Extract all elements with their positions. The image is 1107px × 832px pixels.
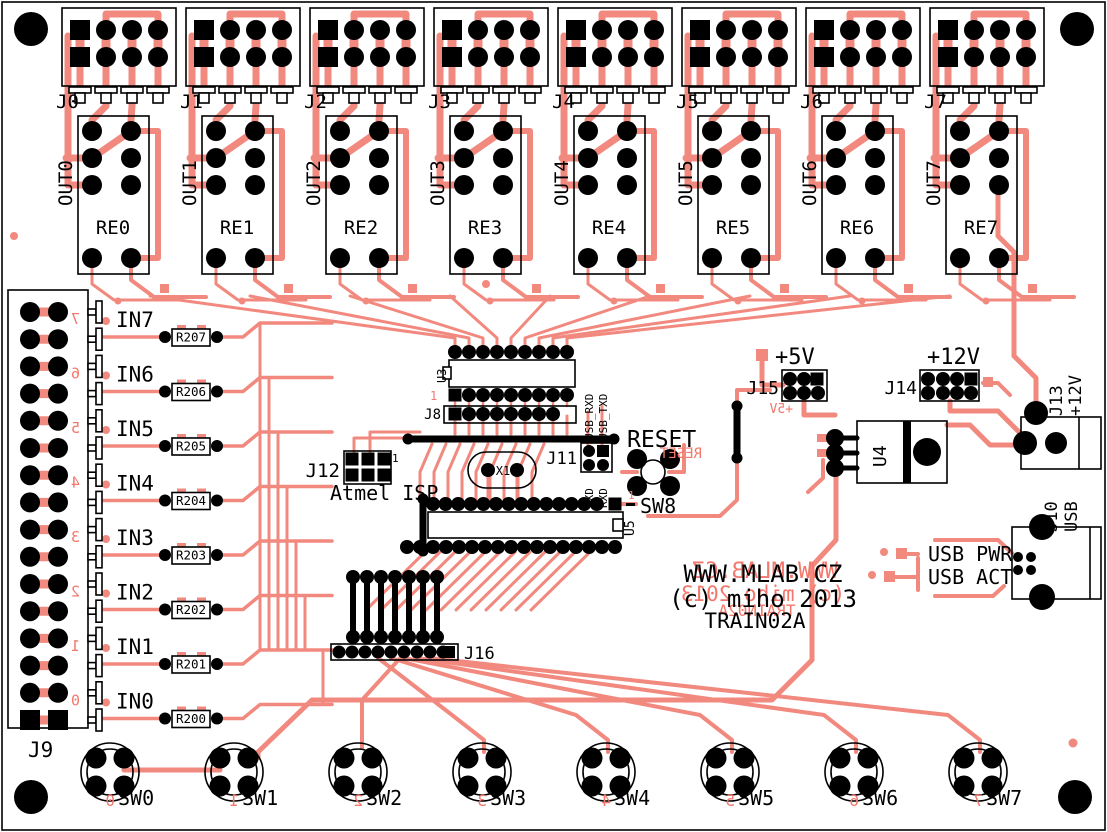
relay-pad [330, 248, 350, 268]
copper-trace [456, 552, 515, 610]
copper-pad [160, 284, 169, 293]
relay-pad [121, 175, 141, 195]
j9-terminal-pin [88, 608, 96, 614]
relay-pad [826, 121, 846, 141]
connector-pad [344, 20, 364, 40]
u3-pad [462, 388, 476, 402]
j10-signal-pad [1013, 565, 1023, 575]
resistor-designator: R207 [176, 330, 206, 345]
connector-pad [122, 47, 142, 67]
relay-pad [578, 175, 598, 195]
j9-terminal-pin [96, 546, 102, 568]
mounting-hole [14, 12, 48, 46]
u3-pin1-mark: 1 [430, 389, 437, 403]
terminal-pin [747, 93, 757, 103]
resistor-designator: R204 [176, 493, 206, 508]
connector-pad [938, 47, 958, 67]
relay-pad [330, 148, 350, 168]
terminal-pin [715, 87, 737, 93]
relay-designator: RE5 [716, 217, 750, 239]
connector-designator: J6 [800, 91, 823, 113]
connector-pad [220, 20, 240, 40]
relay-designator: RE4 [592, 217, 626, 239]
terminal-pin [1021, 93, 1031, 103]
connector-pad [592, 47, 612, 67]
terminal-pin [721, 93, 731, 103]
resistor-designator: R202 [176, 602, 206, 617]
relay-pad [702, 248, 722, 268]
resistor-pad [159, 713, 171, 725]
relay-pad [206, 121, 226, 141]
connector-pad [344, 47, 364, 67]
resistor-pad [211, 331, 223, 343]
u5-outline [428, 512, 623, 538]
sw8-designator: SW8 [640, 494, 676, 518]
resistor-pad [211, 658, 223, 670]
u4-tab-hole [913, 438, 941, 466]
u5-pad [464, 497, 478, 511]
j9-pin-number-mirrored: 3 [71, 528, 80, 546]
u3-pad [490, 345, 504, 359]
terminal-pin [277, 93, 287, 103]
isp-pad [362, 469, 375, 482]
u5-pad [556, 540, 570, 554]
terminal-pin [969, 93, 979, 103]
relay-pad [865, 148, 885, 168]
output-label: OUT4 [551, 160, 573, 206]
u3-pad [462, 345, 476, 359]
u5-pad [595, 540, 609, 554]
u5-pad [552, 497, 566, 511]
relay-pad [493, 248, 513, 268]
relay-pad [702, 121, 722, 141]
u4-designator: U4 [870, 445, 891, 467]
j9-terminal-pin [96, 627, 102, 649]
j9-pad [20, 547, 40, 567]
j9-pad [20, 601, 40, 621]
u5-pad [504, 540, 518, 554]
board-name-text: TRAIN02A [704, 609, 806, 633]
copper-trace [531, 552, 590, 610]
relay-pad [617, 121, 637, 141]
j9-terminal-pin [88, 418, 96, 424]
j11-designator: J11 [546, 449, 577, 469]
via-dot [487, 298, 494, 305]
relay-pad [245, 175, 265, 195]
copper-trace [516, 552, 575, 610]
switch-designator: SW1 [242, 786, 278, 810]
connector-pad [814, 47, 834, 67]
relay-pad [865, 175, 885, 195]
connector-pad [1016, 20, 1036, 40]
u5-pad [476, 497, 490, 511]
terminal-pin [1015, 87, 1037, 93]
connector-pad [194, 47, 214, 67]
relay-pad [206, 175, 226, 195]
connector-pad [494, 47, 514, 67]
resistor-pad [159, 386, 171, 398]
resistor-pad [211, 604, 223, 616]
switch-designator: SW5 [738, 786, 774, 810]
output-label: OUT3 [427, 160, 449, 206]
j9-pin-number-mirrored: 5 [71, 419, 80, 437]
txd-label: TXD [583, 488, 596, 508]
j9-terminal-pin [96, 355, 102, 377]
resistor-pad [159, 549, 171, 561]
mounting-hole [1060, 12, 1094, 46]
copper-trace [222, 323, 332, 337]
connector-designator: J2 [304, 91, 327, 113]
terminal-pin [121, 87, 143, 93]
relay-pad [330, 175, 350, 195]
relay-pad [950, 121, 970, 141]
u5-pad [452, 540, 466, 554]
usb-pwr-label: USB PWR [928, 542, 1013, 566]
connector-pad [768, 47, 788, 67]
copper-trace [501, 552, 560, 610]
via-dot [735, 298, 742, 305]
connector-pad [892, 47, 912, 67]
terminal-pin [865, 87, 887, 93]
via-dot [239, 298, 246, 305]
j13-pad [1045, 432, 1067, 454]
x1-designator: X1 [496, 464, 510, 478]
connector-designator: J3 [428, 91, 451, 113]
j9-terminal-pin [96, 301, 102, 323]
j9-pad [48, 492, 68, 512]
relay-pad [741, 175, 761, 195]
j9-terminal-pin [96, 383, 102, 405]
terminal-pin [845, 93, 855, 103]
u3-pad [448, 345, 462, 359]
j9-pad [20, 356, 40, 376]
j9-terminal-pin [96, 655, 102, 677]
relay-pad [121, 248, 141, 268]
connector-designator: J1 [180, 91, 203, 113]
rxd-label: RXD [597, 488, 610, 508]
connector-pad [990, 47, 1010, 67]
j9-pad [48, 547, 68, 567]
terminal-pin [245, 87, 267, 93]
usb-act-led-pad [884, 571, 895, 582]
copper-trace [486, 552, 545, 610]
wire-end [418, 546, 429, 557]
j8-pad [462, 407, 476, 421]
j9-terminal-pin [88, 581, 96, 587]
relay-pad [826, 175, 846, 195]
copper-trace [222, 650, 332, 664]
output-label: OUT0 [55, 160, 77, 206]
output-label: OUT1 [179, 160, 201, 206]
terminal-pin [95, 87, 117, 93]
terminal-pin [989, 87, 1011, 93]
switch-designator: SW2 [366, 786, 402, 810]
j9-pin-number-mirrored: 2 [71, 583, 80, 601]
j8-pad [532, 407, 546, 421]
relay-pad [82, 121, 102, 141]
connector-designator: J4 [552, 91, 575, 113]
j9-pad [20, 384, 40, 404]
via-dot [859, 298, 866, 305]
relay-pad [826, 148, 846, 168]
relay-pad [245, 248, 265, 268]
relay-pad [826, 248, 846, 268]
u5-pad [465, 540, 479, 554]
j16-pad [385, 646, 398, 659]
relay-pad [741, 248, 761, 268]
j9-terminal-pin [88, 663, 96, 669]
via-dot [1069, 739, 1078, 748]
terminal-pin [591, 87, 613, 93]
j14-pad [950, 372, 964, 386]
j9-pad [48, 465, 68, 485]
u5-pad [608, 540, 622, 554]
relay-pad [578, 121, 598, 141]
connector-pad [566, 47, 586, 67]
u5-pad [400, 540, 414, 554]
relay-pad [578, 248, 598, 268]
terminal-pin [741, 87, 763, 93]
j9-pad [48, 628, 68, 648]
terminal-pin [597, 93, 607, 103]
switch-number-mirrored: 2 [353, 791, 363, 810]
resistor-pad [159, 440, 171, 452]
connector-pad [148, 47, 168, 67]
j11-pad [597, 459, 609, 471]
j13-pad [1024, 401, 1048, 425]
relay-pad [950, 175, 970, 195]
j12-pin1-mark: 1 [392, 452, 399, 465]
j16-pad [411, 646, 424, 659]
j9-pin-number-mirrored: 1 [71, 637, 80, 655]
j8-pad [504, 407, 518, 421]
switch-designator: SW0 [118, 786, 154, 810]
j11-pad-pin1 [597, 445, 609, 457]
j10-shield-pad [1029, 584, 1055, 610]
copper-pad [284, 284, 293, 293]
connector-designator: J0 [56, 91, 79, 113]
terminal-pin [525, 93, 535, 103]
switch-designator: SW7 [986, 786, 1022, 810]
u3-pad [546, 345, 560, 359]
relay-pad [330, 121, 350, 141]
relay-pad [950, 148, 970, 168]
j14-pad [936, 386, 950, 400]
copper-pad [780, 284, 789, 293]
j9-pad [20, 520, 40, 540]
relay-pad [865, 248, 885, 268]
u3-pad [476, 388, 490, 402]
input-label: IN0 [116, 690, 154, 714]
relay-pad [989, 121, 1009, 141]
u5-pad [569, 540, 583, 554]
connector-pad [618, 20, 638, 40]
connector-pad [690, 47, 710, 67]
u3-pad-pin1 [449, 389, 462, 402]
copper-trace [950, 401, 1021, 434]
reset-label: RESET [627, 427, 696, 453]
crystal-pad [510, 463, 524, 477]
j9-terminal-pin [88, 336, 96, 342]
j9-terminal-pin [88, 363, 96, 369]
j10-signal-pad [1013, 552, 1023, 562]
connector-pad [964, 20, 984, 40]
terminal-pin [225, 93, 235, 103]
j12-designator: J12 [306, 460, 340, 482]
switch-number-mirrored: 4 [601, 791, 611, 810]
j9-pad-pin [20, 710, 40, 730]
terminal-pin [271, 87, 293, 93]
u5-pad [527, 497, 541, 511]
u5-pad [514, 497, 528, 511]
copper-pad [1028, 284, 1037, 293]
j9-pad [48, 329, 68, 349]
connector-pad [1016, 47, 1036, 67]
j16-pad-square [443, 646, 455, 658]
via-dot [115, 298, 122, 305]
j11-pad [583, 459, 595, 471]
j8-pad [518, 407, 532, 421]
relay-pad [82, 148, 102, 168]
via-dot [983, 298, 990, 305]
input-label: IN1 [116, 635, 154, 659]
relay-pad [454, 148, 474, 168]
terminal-pin [519, 87, 541, 93]
connector-pad [272, 20, 292, 40]
connector-pad [70, 47, 90, 67]
u5-pad [565, 497, 579, 511]
terminal-pin [369, 87, 391, 93]
connector-designator: J7 [924, 91, 947, 113]
j9-terminal-pin [88, 309, 96, 315]
u5-pad [582, 540, 596, 554]
plus5v-label: +5V [775, 345, 815, 370]
relay-pad [245, 121, 265, 141]
j16-designator: J16 [464, 644, 495, 664]
input-label: IN3 [116, 526, 154, 550]
wire-end [732, 453, 743, 464]
connector-pad [96, 20, 116, 40]
relay-pad [82, 248, 102, 268]
switch-number-mirrored: 6 [849, 791, 859, 810]
relay-pad [369, 148, 389, 168]
connector-pad-pin1 [938, 20, 958, 40]
u3-pad [560, 345, 574, 359]
relay-pad [741, 121, 761, 141]
relay-designator: RE6 [840, 217, 874, 239]
relay-pad [206, 248, 226, 268]
resistor-pad [211, 386, 223, 398]
j9-pin-number-mirrored: 6 [71, 365, 80, 383]
connector-pad-pin1 [442, 20, 462, 40]
copper-trace [804, 400, 835, 415]
switch-designator: SW4 [614, 786, 650, 810]
isp-pad [378, 453, 391, 466]
j14-pad-square [965, 373, 978, 386]
j9-designator: J9 [28, 738, 53, 762]
j15-pad-square [811, 373, 824, 386]
resistor-pad [211, 495, 223, 507]
terminal-pin [617, 87, 639, 93]
connector-pad [716, 47, 736, 67]
via-dot [880, 548, 888, 556]
u3-pad [518, 345, 532, 359]
output-label: OUT2 [303, 160, 325, 206]
wire-end [403, 434, 414, 445]
terminal-pin [649, 93, 659, 103]
j16-pad [372, 646, 385, 659]
j16-pad [424, 646, 437, 659]
usb-pwr-led-pad [896, 548, 907, 559]
isp-pad [346, 453, 359, 466]
switch-designator: SW6 [862, 786, 898, 810]
j10-designator: J10 [1042, 501, 1062, 532]
j9-terminal-pin [88, 445, 96, 451]
relay-pad [454, 175, 474, 195]
relay-pad [741, 148, 761, 168]
resistor-pad [211, 713, 223, 725]
mounting-hole [14, 780, 48, 814]
via-dot [611, 298, 618, 305]
j9-pad [20, 574, 40, 594]
terminal-pin [643, 87, 665, 93]
copper-pad [408, 284, 417, 293]
resistor-designator: R203 [176, 548, 206, 563]
input-led-dot [102, 426, 110, 434]
bottom-silk-5v-text: +5V [769, 402, 793, 417]
j8-pad [490, 407, 504, 421]
connector-pad [892, 20, 912, 40]
reset-button-outline [641, 460, 665, 484]
connector-pad [618, 47, 638, 67]
input-label: IN7 [116, 308, 154, 332]
mounting-hole [1058, 780, 1092, 814]
copper-trace [222, 378, 332, 392]
j8-pad [546, 407, 560, 421]
connector-pad [122, 20, 142, 40]
u3-pad [546, 388, 560, 402]
j9-terminal-pin [96, 573, 102, 595]
terminal-pin [499, 93, 509, 103]
u5-pad [489, 497, 503, 511]
via-dot [482, 280, 490, 288]
j9-pad [48, 302, 68, 322]
j14-pad [921, 372, 935, 386]
isp-pad [346, 469, 359, 482]
j9-terminal-pin [96, 519, 102, 541]
relay-pad [206, 148, 226, 168]
j9-pad [48, 411, 68, 431]
j9-pad [20, 302, 40, 322]
resistor-designator: R205 [176, 439, 206, 454]
connector-pad [396, 47, 416, 67]
relay-pad [702, 175, 722, 195]
j9-pad [48, 356, 68, 376]
j9-pad [20, 683, 40, 703]
usb-title-label: USB [1062, 501, 1082, 532]
u5-pad [543, 540, 557, 554]
relay-pad [950, 248, 970, 268]
j9-pad-pin [48, 710, 68, 730]
terminal-pin [839, 87, 861, 93]
j9-terminal-pin [88, 717, 96, 723]
j9-terminal-pin [88, 635, 96, 641]
terminal-pin [891, 87, 913, 93]
connector-pad [520, 47, 540, 67]
connector-pad [742, 47, 762, 67]
j14-designator: J14 [884, 378, 917, 399]
j10-signal-pad [1026, 552, 1036, 562]
